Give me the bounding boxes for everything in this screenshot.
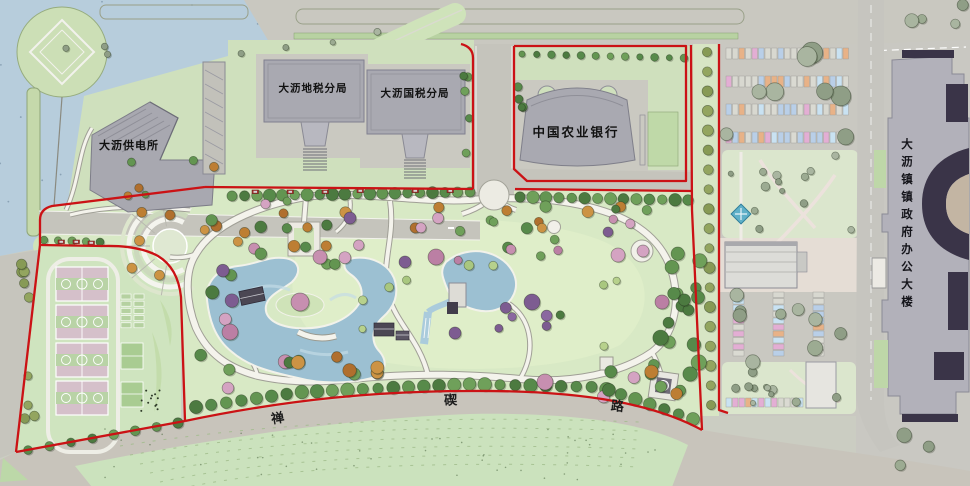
canopy-strip	[203, 62, 225, 174]
site-plan-drawing	[0, 0, 970, 486]
pavilion-cluster	[374, 323, 394, 336]
bank-side-lawn	[648, 112, 678, 166]
median-green-strip	[294, 33, 738, 39]
entrance-plaza	[479, 180, 509, 210]
bank-south-road	[478, 168, 692, 191]
site-plan: 大沥供电所 大沥地税分局 大沥国税分局 中国农业银行 大沥镇镇政府办公大楼 禅 …	[0, 0, 970, 486]
service-building	[806, 362, 836, 408]
circle-node-mid	[548, 221, 561, 234]
jetty-strip	[27, 88, 40, 236]
long-canopy-building	[725, 242, 797, 288]
